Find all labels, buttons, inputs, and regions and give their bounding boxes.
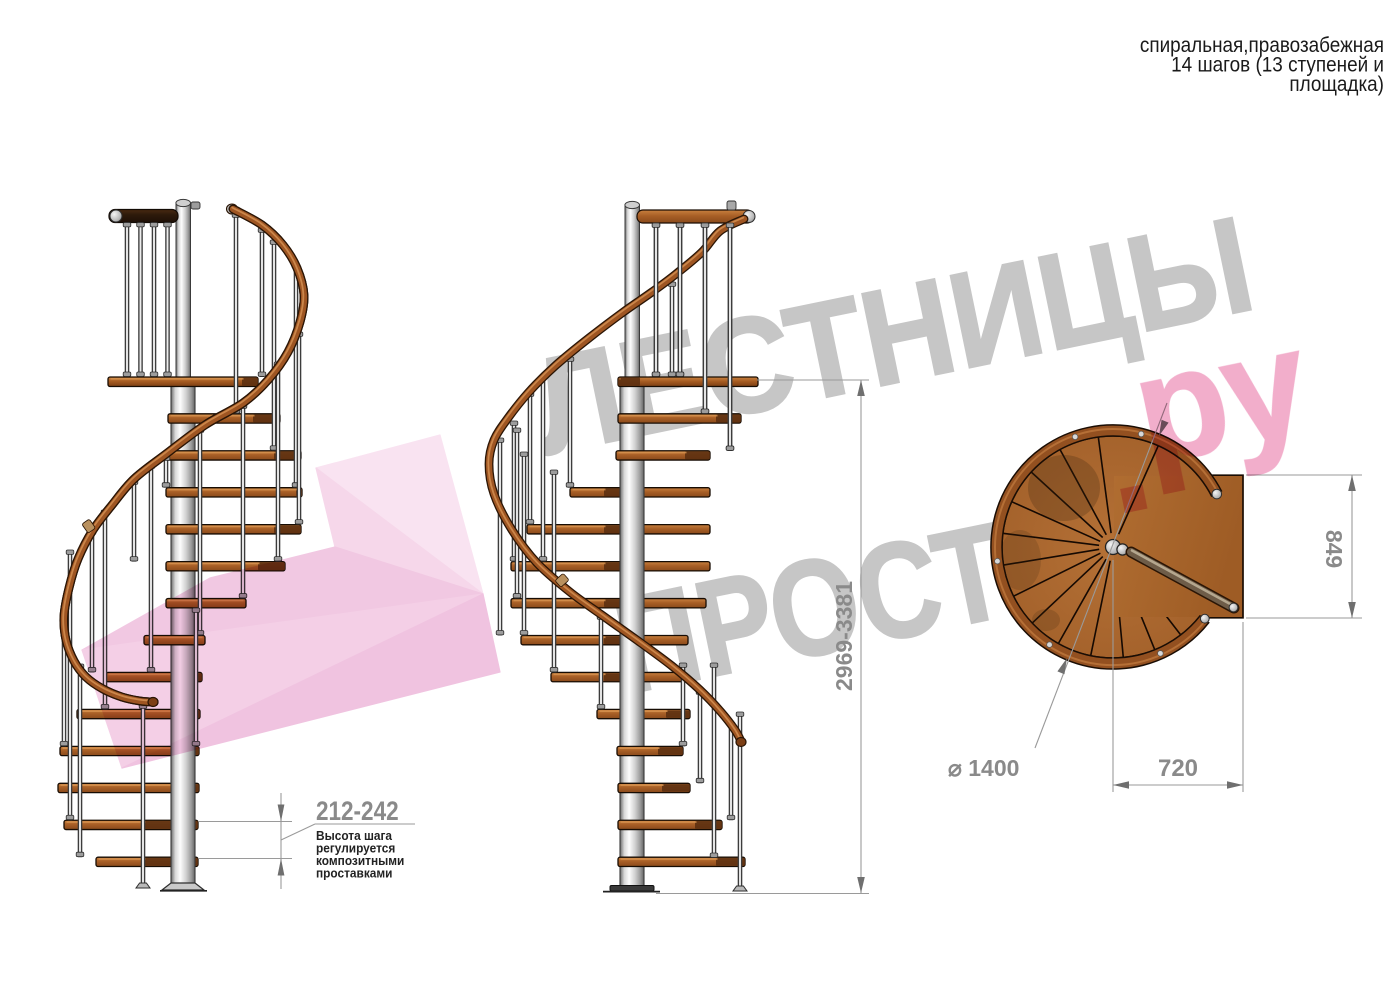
svg-text:849: 849: [1321, 530, 1347, 568]
svg-text:проставками: проставками: [316, 866, 392, 880]
svg-text:720: 720: [1158, 755, 1198, 782]
svg-text:212-242: 212-242: [316, 797, 399, 826]
svg-text:2969-3381: 2969-3381: [831, 581, 857, 691]
svg-text:площадка): площадка): [1289, 73, 1384, 96]
svg-text:⌀ 1400: ⌀ 1400: [948, 755, 1019, 781]
